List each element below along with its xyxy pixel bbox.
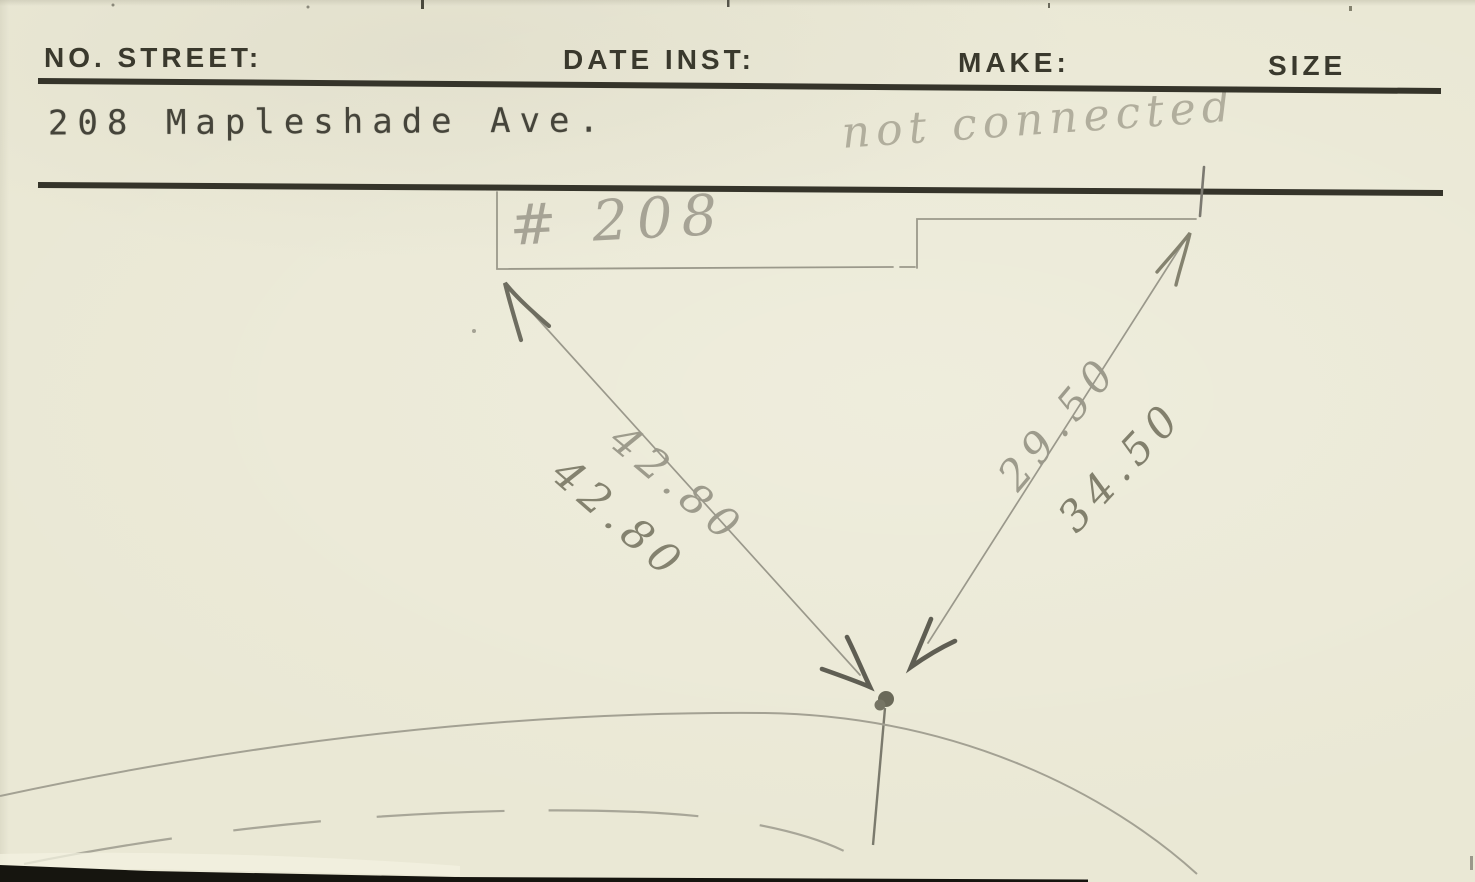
top-edge-speck — [727, 0, 730, 7]
site-sketch-svg — [0, 0, 1475, 882]
top-edge-speck — [421, 0, 424, 9]
right-edge-nick — [1470, 856, 1473, 870]
record-card: NO. STREET: DATE INST: MAKE: SIZE 208 Ma… — [0, 0, 1475, 882]
right-measurement-arrow — [911, 233, 1190, 667]
left-arrow-head-top-icon — [505, 283, 549, 340]
top-rule — [38, 81, 1441, 91]
right-arrow-line — [928, 243, 1183, 643]
plumb-line — [873, 708, 885, 845]
top-edge-speck — [307, 6, 310, 9]
reference-point — [873, 691, 894, 845]
top-edge-speck — [1048, 3, 1050, 8]
house-outline-left-box — [497, 192, 893, 269]
scan-artifacts — [0, 0, 1473, 882]
house-outline-step — [917, 219, 1196, 268]
top-edge-speck — [112, 4, 115, 7]
left-measurement-arrow — [505, 283, 870, 687]
left-arrow-head-bottom-icon — [822, 637, 870, 687]
left-arrow-line — [519, 298, 860, 675]
right-arrow-head-bottom-icon — [911, 619, 955, 667]
top-edge-speck — [1349, 6, 1352, 11]
mid-rule — [38, 185, 1443, 193]
curb-line-solid — [0, 713, 1197, 874]
house-outline — [497, 167, 1204, 269]
pencil-speck — [472, 329, 476, 333]
